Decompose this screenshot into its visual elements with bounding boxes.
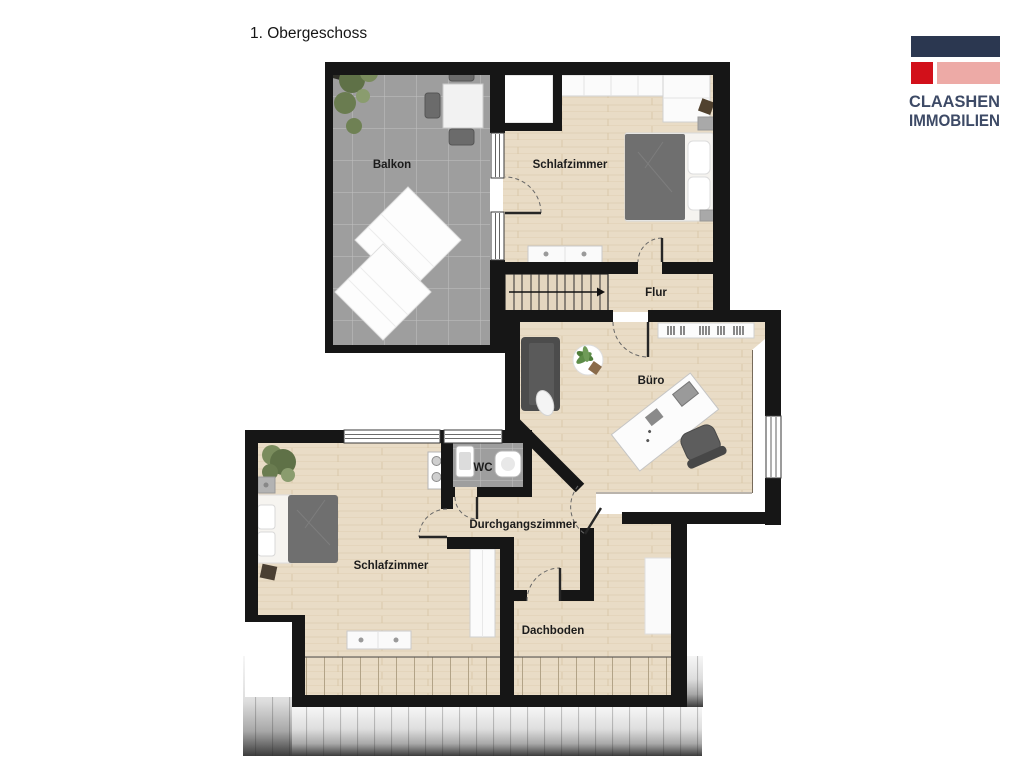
logo-text-line2: IMMOBILIEN	[909, 111, 1000, 130]
label-schlafzimmer-unten: Schlafzimmer	[354, 560, 429, 572]
dachboden-cabinet	[645, 558, 672, 634]
label-balkon: Balkon	[373, 159, 411, 171]
label-buero: Büro	[638, 375, 665, 387]
window-balkon-2	[491, 212, 504, 260]
roof-band-bottom-lines	[292, 707, 702, 756]
window-schlafzimmer-unten	[344, 430, 440, 443]
label-dachboden: Dachboden	[522, 625, 585, 637]
bed-top	[625, 133, 713, 221]
staircase	[505, 274, 608, 311]
interior-slope-zone	[305, 657, 671, 695]
shaft	[503, 75, 553, 123]
window-wc	[444, 430, 502, 443]
pillow	[688, 177, 710, 210]
nightstand-handle	[264, 483, 269, 488]
balkon-table	[443, 84, 483, 128]
logo-red-square	[911, 62, 933, 84]
pillow	[258, 505, 275, 529]
wc-sink	[456, 446, 474, 477]
label-flur: Flur	[645, 287, 667, 299]
bed-bottom	[258, 495, 338, 563]
label-schlafzimmer-oben: Schlafzimmer	[533, 159, 608, 171]
nightstand	[698, 117, 714, 130]
label-wc: WC	[473, 462, 492, 474]
nightstand	[700, 210, 714, 221]
page-title: 1. Obergeschoss	[250, 25, 367, 42]
floorplan-page: Balkon Schlafzimmer Flur Büro WC Durchga…	[0, 0, 1024, 768]
window-buero	[766, 416, 781, 478]
wc-toilet	[495, 451, 521, 477]
window-balkon-1	[491, 133, 504, 178]
pillow	[258, 532, 275, 556]
corner-notch	[245, 622, 292, 697]
pillow	[688, 141, 710, 174]
logo-pink-bar	[937, 62, 1000, 84]
balkon-chair	[425, 93, 440, 118]
logo-navy-bar	[911, 36, 1000, 57]
company-logo: CLAASHEN IMMOBILIEN	[909, 36, 1000, 130]
label-durchgangszimmer: Durchgangszimmer	[469, 519, 577, 531]
roof-band-right-lines	[687, 656, 703, 707]
logo-text-line1: CLAASHEN	[909, 92, 1000, 111]
plant-buero	[573, 345, 603, 375]
wardrobe	[470, 549, 495, 637]
balkon-chair	[449, 129, 474, 145]
floorplan-drawing: Balkon Schlafzimmer Flur Büro WC Durchga…	[0, 0, 1024, 768]
bookshelf	[658, 323, 754, 338]
sofa	[521, 337, 560, 418]
dresser-top	[528, 246, 602, 263]
dresser-bottom	[347, 631, 411, 649]
